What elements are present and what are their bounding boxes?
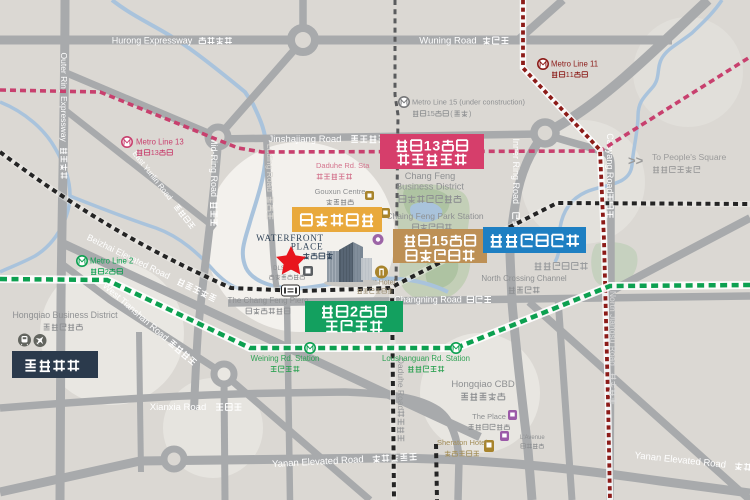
svg-text:Chaing Feng Park Station: Chaing Feng Park Station xyxy=(386,211,484,221)
svg-text:2: 2 xyxy=(105,267,109,276)
svg-text:2: 2 xyxy=(350,305,358,321)
svg-text:Chang Feng: Chang Feng xyxy=(405,171,456,181)
svg-text:): ) xyxy=(469,109,471,118)
svg-text:Hurong Expressway: Hurong Expressway xyxy=(112,36,193,46)
svg-text:Metro Line 15 (under construct: Metro Line 15 (under construction) xyxy=(412,98,525,107)
svg-text:5: 5 xyxy=(440,233,448,249)
svg-text:1: 1 xyxy=(570,70,574,79)
svg-text:1: 1 xyxy=(432,233,440,249)
svg-text:Jinshajiang Road: Jinshajiang Road xyxy=(269,134,342,145)
svg-text:Caoyang Road: Caoyang Road xyxy=(605,133,615,193)
svg-text:1: 1 xyxy=(424,138,432,154)
svg-text:Weining Rd. Station: Weining Rd. Station xyxy=(251,354,320,363)
svg-text:Gouxun Centre: Gouxun Centre xyxy=(315,187,366,196)
svg-text:Outer Ring Expressway: Outer Ring Expressway xyxy=(59,53,69,143)
svg-text:3: 3 xyxy=(432,138,440,154)
svg-text:Loushanguan Rd. Station: Loushanguan Rd. Station xyxy=(382,354,470,363)
svg-text:Metro Line 2: Metro Line 2 xyxy=(90,257,133,266)
svg-text:Inner Ring Road: Inner Ring Road xyxy=(511,139,521,205)
svg-text:Daduhe Rd. Sta: Daduhe Rd. Sta xyxy=(316,161,370,170)
svg-text:3: 3 xyxy=(155,148,159,157)
svg-text:Metro Line 11: Metro Line 11 xyxy=(551,60,598,69)
svg-text:>>: >> xyxy=(628,153,644,168)
svg-text:Hongqiao Business District: Hongqiao Business District xyxy=(12,310,118,320)
svg-text:North Jiangsu Road: North Jiangsu Road xyxy=(608,291,618,366)
svg-text:Daduhe Road: Daduhe Road xyxy=(396,358,406,411)
svg-text:Changning Road: Changning Road xyxy=(394,295,462,305)
svg-text:Xianxia Road: Xianxia Road xyxy=(150,402,207,413)
svg-text:To People's Square: To People's Square xyxy=(652,152,726,162)
svg-text:Wuning Road: Wuning Road xyxy=(419,36,476,47)
svg-text:5: 5 xyxy=(431,109,435,118)
svg-text:The Chang Feng Piero: The Chang Feng Piero xyxy=(228,296,309,305)
svg-text:The Place: The Place xyxy=(472,412,506,421)
svg-text:L'Avenue: L'Avenue xyxy=(520,435,545,441)
svg-text:Business District: Business District xyxy=(396,182,464,192)
svg-text:PLACE: PLACE xyxy=(291,242,324,252)
svg-text:Metro Line 13: Metro Line 13 xyxy=(136,138,184,147)
svg-text:Sheraton Hotel: Sheraton Hotel xyxy=(437,438,487,447)
svg-text:Mid-Ring Road: Mid-Ring Road xyxy=(209,137,219,197)
svg-text:Hongqiao CBD: Hongqiao CBD xyxy=(451,379,515,390)
svg-text:North Crossing Channel: North Crossing Channel xyxy=(481,274,567,283)
